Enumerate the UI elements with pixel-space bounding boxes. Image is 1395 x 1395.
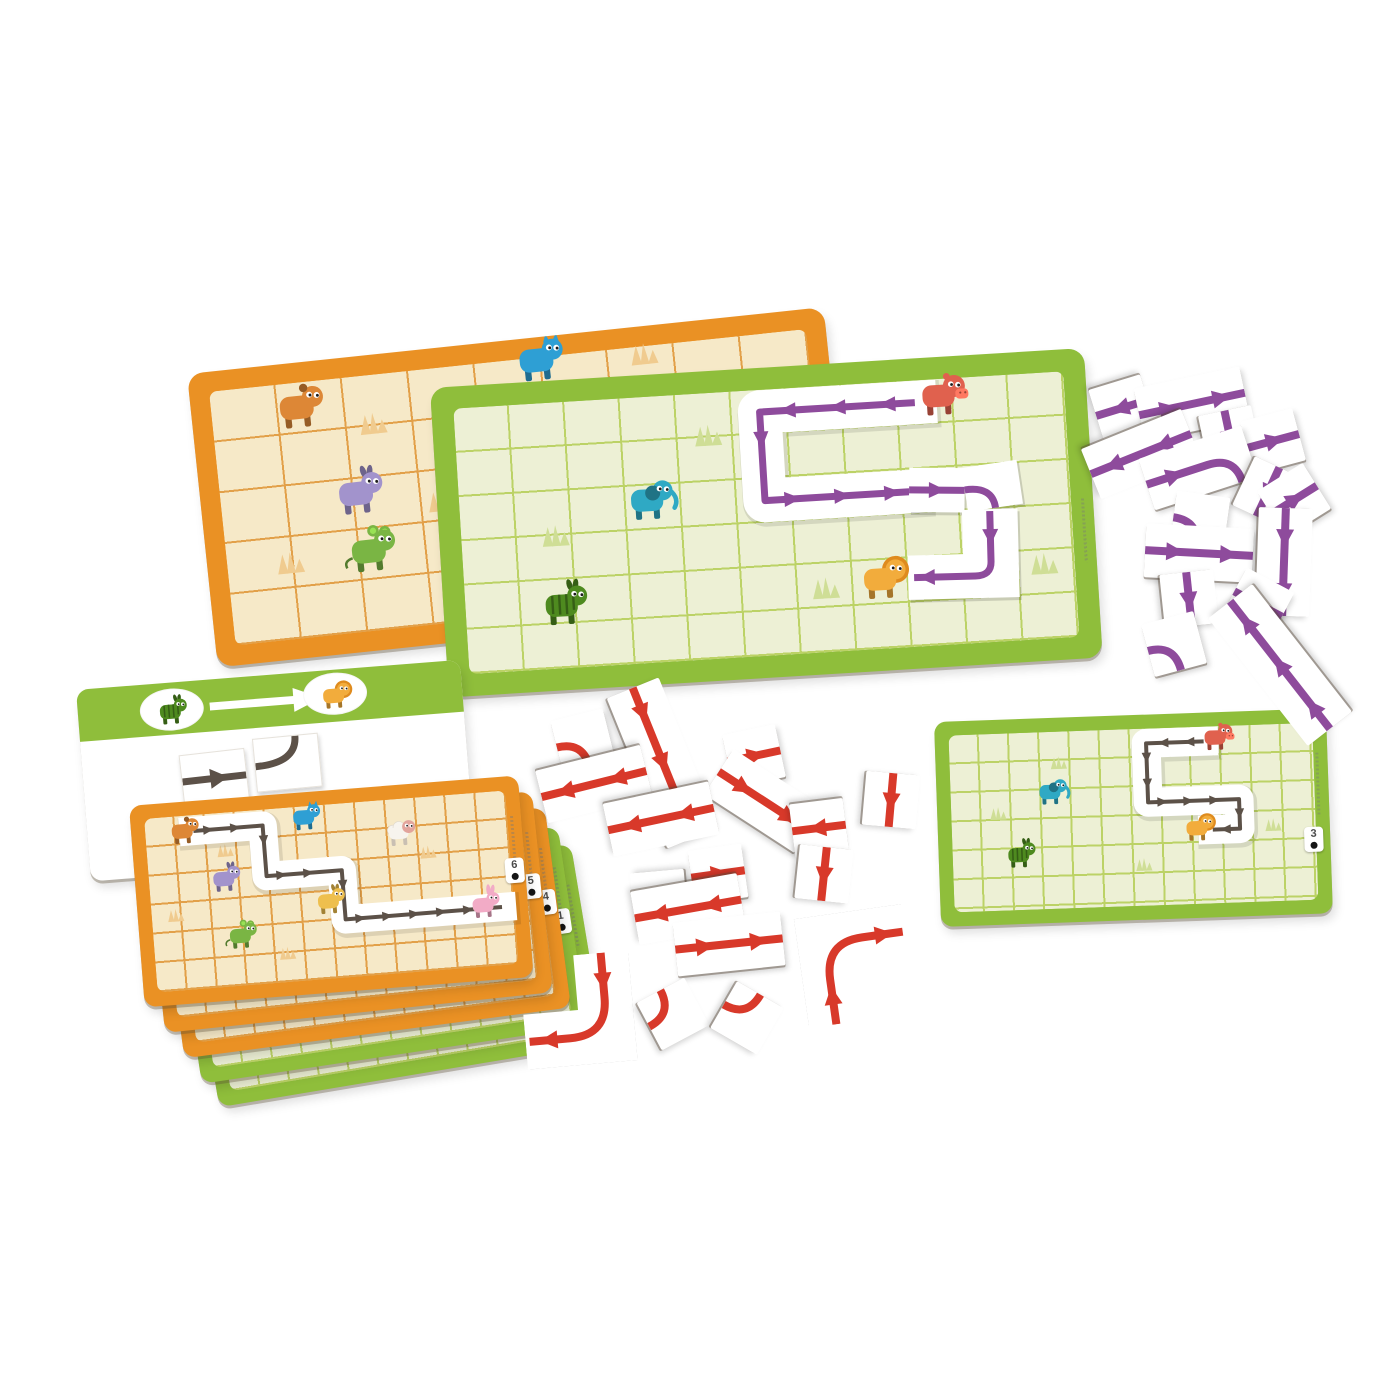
zebra: [159, 693, 189, 725]
path-tile-L: [794, 904, 918, 1028]
start-animal-oval: [138, 686, 205, 733]
curve-path-icon: [253, 734, 322, 792]
solution-card: 3: [934, 708, 1333, 927]
fine-print-text: [1315, 753, 1320, 817]
path-tile-c: [636, 977, 709, 1050]
fine-print-text: [1081, 498, 1088, 562]
path-tile-c: [710, 981, 784, 1055]
goal-animal-oval: [302, 670, 369, 717]
card-number: 6: [511, 860, 518, 871]
difficulty-dot: [543, 904, 551, 912]
path-tile-L: [518, 950, 637, 1069]
green-game-board: [430, 348, 1103, 697]
zebra-icon: [138, 686, 205, 733]
sample-curve-tile: [252, 733, 323, 793]
solution-card-grid: [948, 723, 1318, 913]
path-tile-d2: [672, 912, 785, 977]
instruction-header-band: [76, 660, 464, 742]
path-tile-s1: [862, 771, 921, 830]
difficulty-dot: [1310, 842, 1317, 849]
game-components-photo: 1 4 5 6 3: [0, 0, 1395, 1395]
path-tile-s1: [794, 844, 853, 903]
green-board-grid: [453, 371, 1079, 674]
lion: [322, 680, 354, 709]
task-card-1-top: 6: [129, 775, 534, 1007]
lion-icon: [302, 670, 369, 717]
card-number-badge: 6: [504, 857, 525, 883]
task-card-grid: [144, 790, 519, 992]
card-number-badge: 3: [1304, 826, 1324, 852]
difficulty-dot: [528, 888, 536, 896]
difficulty-dot: [511, 873, 519, 881]
card-number: 3: [1310, 829, 1317, 840]
card-number: 5: [527, 876, 534, 888]
